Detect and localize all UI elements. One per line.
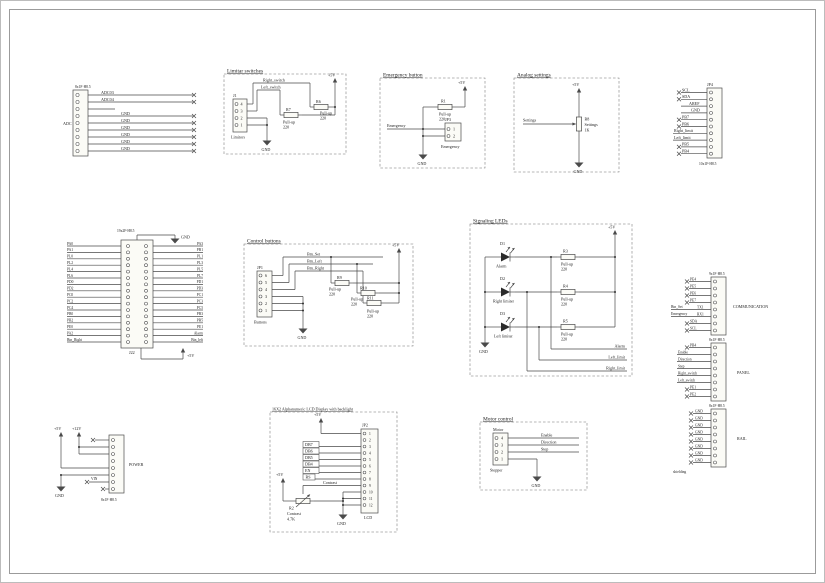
gnd-symbol <box>481 339 490 348</box>
resistor-r6 <box>310 104 332 109</box>
block-title: Analog settings <box>517 73 551 79</box>
connector-panel-body <box>711 343 726 401</box>
net-label-alarm: Alarm <box>615 344 626 349</box>
svg-text:GND: GND <box>695 437 703 441</box>
power-net-label: +5V <box>328 73 335 78</box>
net-label: GND <box>121 111 130 116</box>
wires-left <box>67 246 121 342</box>
svg-text:PD0: PD0 <box>67 280 74 284</box>
connector-name: Emergency <box>441 144 461 149</box>
svg-text:SCL: SCL <box>690 326 697 330</box>
connector-part-label: 8x1F-H8.5 <box>75 85 91 89</box>
group-label-communication: COMMUNICATION <box>733 304 768 309</box>
led-ref: D1 <box>500 241 505 246</box>
block-motor-control: Motor control Motor Stepper 4321 Enable … <box>479 415 589 493</box>
gnd-label: GND <box>181 235 190 240</box>
block-title: 16X2 Alphanumeric LCD Display with backl… <box>272 407 354 412</box>
svg-text:10: 10 <box>369 491 373 495</box>
net-label-vin: VIN <box>91 477 98 481</box>
gnd-symbol <box>57 483 66 492</box>
svg-text:AREF: AREF <box>689 101 700 106</box>
resistor-ref: R10 <box>360 286 367 291</box>
gnd-label: GND <box>532 483 541 488</box>
power-symbol <box>181 348 185 359</box>
connector-group-label: POWER <box>129 462 144 467</box>
connector-ref: JP4 <box>707 82 713 87</box>
net-label-enable: Enable <box>541 433 553 438</box>
led-d1 <box>497 247 515 262</box>
power-net-label: +5V <box>187 353 194 358</box>
svg-text:6: 6 <box>369 465 371 469</box>
power-symbol <box>463 86 467 97</box>
svg-text:GND: GND <box>695 430 703 434</box>
connector-comm-body <box>711 277 726 335</box>
wires-top <box>137 235 175 240</box>
svg-text:Step: Step <box>678 364 685 368</box>
rail-net-labels: GNDGNDGNDGNDGNDGNDGNDGND <box>695 409 703 462</box>
block-lcd: 16X2 Alphanumeric LCD Display with backl… <box>269 405 399 535</box>
connector-ref: JP2 <box>362 423 368 428</box>
power-net-label: +5V <box>392 243 399 248</box>
svg-text:Btn_Right: Btn_Right <box>67 338 82 342</box>
lcd-data-net-flags: DB7 DB6 DB5 DB4 EN RS <box>303 442 319 481</box>
svg-text:PC2: PC2 <box>67 299 73 303</box>
svg-text:2: 2 <box>369 439 371 443</box>
gnd-symbol <box>263 137 272 146</box>
svg-text:GND: GND <box>695 416 703 420</box>
net-label-en: EN <box>305 468 311 473</box>
resistor-r9 <box>331 280 353 285</box>
resistor-r11 <box>363 300 385 305</box>
resistor-ref: R6 <box>316 99 321 104</box>
net-label-direction: Direction <box>541 440 556 445</box>
svg-text:3: 3 <box>265 294 267 299</box>
block-signaling-leds: Signaling LEDs +5V D1 Alarm D2 Right lim… <box>469 217 634 379</box>
net-label-right-switch: Right_switch <box>263 78 285 83</box>
pot-value: 1K <box>585 128 590 133</box>
block-power-header: +5V +12V VIN POWER 8x1F-H8.5 GND <box>45 423 150 507</box>
resistor-value: 220 <box>283 125 289 130</box>
connector-part-label: 9x1F-H8.5 <box>709 272 725 276</box>
svg-text:5: 5 <box>369 458 371 462</box>
svg-text:PL1: PL1 <box>197 255 203 259</box>
svg-text:PE4: PE4 <box>690 277 696 281</box>
net-label: GND <box>121 139 130 144</box>
net-label-btn-right: Btn_Right <box>307 266 325 271</box>
net-label-db7: DB7 <box>305 442 313 447</box>
svg-text:9: 9 <box>369 484 371 488</box>
svg-text:Right_limit: Right_limit <box>674 128 694 133</box>
svg-text:Direction: Direction <box>678 357 692 361</box>
adc-net-labels: ADC03 ADC04 GND GND GND GND GND GND <box>101 90 130 151</box>
wires <box>60 438 109 491</box>
resistor-value: 220 <box>320 116 326 121</box>
net-label-settings: Settings <box>523 118 537 123</box>
connector-part-label: 8x1F-H8.5 <box>101 498 117 502</box>
block-jp4-header: JP4 10x1F-H8.5 SCL SDA AREF GND PB7 PB6 … <box>669 79 789 169</box>
resistor-ref: R9 <box>337 275 342 280</box>
svg-text:PE0: PE0 <box>67 325 73 329</box>
block-main-header: 19x2F-H8.5 GND PA0PA1PL0PL2PL4PL6PD0PD2P… <box>57 225 209 367</box>
block-title: Emergency button <box>383 73 423 79</box>
svg-text:1: 1 <box>265 308 267 313</box>
resistor-ref: R3 <box>563 249 568 254</box>
svg-text:PA1: PA1 <box>67 248 73 252</box>
net-label-left-switch: Left_switch <box>261 85 281 90</box>
svg-text:PB6: PB6 <box>682 121 689 126</box>
svg-text:GND: GND <box>695 423 703 427</box>
connector-name: Limitors <box>231 135 246 140</box>
svg-text:PL5: PL5 <box>197 267 203 271</box>
connector-rail-body <box>711 409 726 467</box>
block-limit-switches: Limitar switches +5V Right_switch Left_s… <box>223 67 348 157</box>
resistor-value: 220 <box>561 337 567 342</box>
note-shielding: shielding <box>673 470 686 474</box>
net-label: GND <box>121 125 130 130</box>
svg-text:PB4: PB4 <box>682 149 689 154</box>
net-label-db6: DB6 <box>305 449 313 454</box>
pot-ref: R8 <box>585 117 590 122</box>
svg-text:GND: GND <box>695 451 703 455</box>
led-name: Alarm <box>496 264 507 269</box>
gnd-label: GND <box>418 161 427 166</box>
gnd-symbol <box>575 159 584 168</box>
svg-text:2: 2 <box>241 116 243 121</box>
net-label-db4: DB4 <box>305 462 313 467</box>
svg-text:RX1: RX1 <box>697 312 704 316</box>
main-left-net-labels: PA0PA1PL0PL2PL4PL6PD0PD2PC0PC2PC4PB0PB2P… <box>67 242 82 342</box>
block-control-buttons: Control buttons +5V Btn_Set Btn_Left Btn… <box>243 237 415 349</box>
svg-text:2: 2 <box>453 134 455 139</box>
svg-text:1: 1 <box>241 123 243 128</box>
svg-text:1: 1 <box>453 127 455 132</box>
connector-part-label: 10x1F-H8.5 <box>699 162 717 166</box>
net-label-rs: RS <box>306 475 312 480</box>
power-net-label: +12V <box>72 426 81 431</box>
power-symbol <box>333 78 337 89</box>
led-name: Left limiter <box>494 334 513 339</box>
resistor-r5 <box>557 324 579 329</box>
power-symbol-12v <box>77 432 81 443</box>
net-label: GND <box>121 146 130 151</box>
block-border <box>514 78 619 172</box>
svg-text:4: 4 <box>241 102 243 107</box>
block-analog-settings: Analog settings +5V Settings R8 Settings… <box>513 71 621 175</box>
gnd-symbol <box>339 511 348 520</box>
svg-text:SCL: SCL <box>682 87 690 92</box>
gnd-label: GND <box>262 147 271 152</box>
svg-text:PE6: PE6 <box>690 291 696 295</box>
pot-value: 4.7K <box>287 517 295 522</box>
gnd-symbol <box>299 325 308 334</box>
svg-text:PA2: PA2 <box>67 331 73 335</box>
resistor-ref: R5 <box>563 319 568 324</box>
net-label-step: Step <box>541 447 548 452</box>
svg-text:PL3: PL3 <box>197 261 203 265</box>
svg-text:GND: GND <box>695 444 703 448</box>
svg-text:3: 3 <box>369 445 371 449</box>
wires <box>283 429 361 511</box>
resistor-ref: R7 <box>286 107 291 112</box>
resistor-r1 <box>434 104 456 109</box>
connector-part-label: 8x1F-H8.5 <box>709 338 725 342</box>
svg-text:PE1: PE1 <box>690 385 696 389</box>
net-label: ADC03 <box>101 90 114 95</box>
connector-adc-body <box>73 90 88 156</box>
svg-text:1: 1 <box>369 432 371 436</box>
svg-text:PA3: PA3 <box>197 242 203 246</box>
net-label-btn-left: Btn_Left <box>307 259 323 264</box>
svg-text:PC3: PC3 <box>197 299 203 303</box>
led-name: Right limiter <box>493 299 515 304</box>
svg-text:PC5: PC5 <box>197 306 203 310</box>
svg-text:PB2: PB2 <box>67 319 73 323</box>
net-label-btn-set: Btn_Set <box>307 252 321 257</box>
gnd-symbol <box>171 235 180 244</box>
resistor-value: 220 <box>351 302 357 307</box>
connector-ref: JP1 <box>257 265 263 270</box>
pot-ref: R2 <box>289 506 294 511</box>
svg-text:Right_switch: Right_switch <box>678 371 697 375</box>
block-title: Signaling LEDs <box>473 219 508 225</box>
connector-ref: J22 <box>129 350 135 355</box>
block-title: Motor control <box>483 417 514 423</box>
svg-text:PC1: PC1 <box>197 293 203 297</box>
svg-text:7: 7 <box>369 471 371 475</box>
power-net-label: +5V <box>608 225 615 230</box>
ext-net-btn-set: Btn_Set <box>671 305 683 309</box>
connector-power-body <box>109 435 124 493</box>
svg-text:PB5: PB5 <box>197 319 203 323</box>
svg-text:12: 12 <box>369 504 373 508</box>
power-net-label: +5V <box>276 472 283 477</box>
svg-text:GND: GND <box>695 458 703 462</box>
svg-text:4: 4 <box>265 287 267 292</box>
power-symbol <box>577 88 581 99</box>
resistor-value: 220 <box>561 302 567 307</box>
resistor-r3 <box>557 254 579 259</box>
svg-text:PB0: PB0 <box>67 312 73 316</box>
led-d3 <box>497 317 515 332</box>
wires-bottom <box>141 348 183 359</box>
led-ref: D2 <box>500 276 505 281</box>
gnd-label: GND <box>337 521 346 526</box>
net-label-left-limit: Left_limit <box>608 355 625 360</box>
svg-text:PD1: PD1 <box>197 280 204 284</box>
svg-text:PL7: PL7 <box>197 274 203 278</box>
block-emergency-button: Emergency button +5V R1 Pull-up 220 Emer… <box>379 71 487 171</box>
connector-ref: JP3 <box>445 117 451 122</box>
svg-text:PE5: PE5 <box>690 284 696 288</box>
resistor-r4 <box>557 289 579 294</box>
resistor-value: 220 <box>561 267 567 272</box>
connector-group-label: ADC <box>63 121 72 126</box>
potentiometer-r8 <box>576 113 581 135</box>
svg-text:PB3: PB3 <box>197 312 203 316</box>
svg-text:3: 3 <box>501 443 503 448</box>
resistor-value: 220 <box>367 314 373 319</box>
group-label-panel: PANEL <box>737 370 750 375</box>
comm-net-labels: PE4PE5PE6PE7TX1RX1SDASCL <box>690 277 704 330</box>
power-net-label: +5V <box>54 426 61 431</box>
net-label-db5: DB5 <box>305 455 313 460</box>
power-symbol-5v <box>59 432 63 443</box>
power-symbol <box>613 230 617 241</box>
svg-text:PL6: PL6 <box>67 274 73 278</box>
gnd-symbol <box>533 473 542 482</box>
gnd-label: GND <box>479 349 488 354</box>
svg-text:8: 8 <box>369 478 371 482</box>
power-symbol <box>397 248 401 259</box>
ext-net-emergency: Emergency <box>671 312 688 316</box>
svg-text:SDA: SDA <box>690 319 698 323</box>
power-symbol <box>319 418 323 429</box>
svg-text:4: 4 <box>369 452 371 456</box>
svg-text:GND: GND <box>691 108 700 113</box>
svg-text:PB5: PB5 <box>682 142 689 147</box>
led-d2 <box>497 282 515 297</box>
svg-text:SDA: SDA <box>682 94 690 99</box>
svg-text:PL2: PL2 <box>67 261 73 265</box>
svg-text:1: 1 <box>501 457 503 462</box>
wires <box>523 99 579 159</box>
svg-text:Alarm: Alarm <box>194 331 203 335</box>
svg-text:6: 6 <box>265 273 267 278</box>
svg-text:2: 2 <box>501 450 503 455</box>
svg-text:PE1: PE1 <box>197 325 203 329</box>
schematic-sheet: 8x1F-H8.5 ADC ADC03 ADC04 GND GND GND GN… <box>0 0 825 583</box>
connector-jp4-body <box>707 88 722 158</box>
svg-text:PE7: PE7 <box>690 298 696 302</box>
svg-text:5: 5 <box>265 280 267 285</box>
led-ref: D3 <box>500 311 505 316</box>
svg-text:PC4: PC4 <box>67 306 73 310</box>
resistor-r7 <box>280 112 302 117</box>
svg-text:Left_limit: Left_limit <box>674 135 691 140</box>
connector-name: LCD <box>364 515 372 520</box>
connector-ref: J1 <box>233 93 237 98</box>
connector-adc-pins <box>76 93 79 152</box>
svg-text:Enable: Enable <box>678 350 688 354</box>
svg-text:PB7: PB7 <box>682 115 689 120</box>
svg-text:3: 3 <box>241 109 243 114</box>
svg-text:PL0: PL0 <box>67 255 73 259</box>
svg-text:Left_switch: Left_switch <box>678 378 695 382</box>
block-title: Limitar switches <box>227 69 263 75</box>
svg-text:TX1: TX1 <box>697 305 704 309</box>
resistor-ref: R11 <box>367 296 374 301</box>
net-label: GND <box>121 132 130 137</box>
resistor-ref: R4 <box>563 284 568 289</box>
gnd-symbol <box>419 151 428 160</box>
jp4-no-connects <box>677 91 681 156</box>
net-label-contrast: Contrast <box>323 480 338 485</box>
net-label-right-limit: Right_limit <box>606 366 626 371</box>
power-symbol <box>281 478 285 489</box>
power-net-label: +5V <box>458 80 465 85</box>
resistor-ref: R1 <box>441 99 446 104</box>
power-net-label: +5V <box>572 82 579 87</box>
main-right-net-labels: PA3PB1PL1PL3PL5PL7PD1PD3PC1PC3PC5PB3PB5P… <box>191 242 203 342</box>
svg-text:PB1: PB1 <box>197 248 203 252</box>
net-label-emergency: Emergency <box>387 123 407 128</box>
connector-main-body <box>121 240 153 348</box>
svg-text:4: 4 <box>501 436 503 441</box>
svg-text:PD2: PD2 <box>67 287 74 291</box>
gnd-label: GND <box>55 493 64 498</box>
connector-part-label: 19x2F-H8.5 <box>117 229 135 233</box>
block-title: Control buttons <box>247 239 281 245</box>
svg-text:2: 2 <box>265 301 267 306</box>
svg-text:PC0: PC0 <box>67 293 73 297</box>
net-label: GND <box>121 118 130 123</box>
svg-text:PB4: PB4 <box>690 343 696 347</box>
svg-text:PD3: PD3 <box>197 287 204 291</box>
svg-text:Btn_left: Btn_left <box>191 338 203 342</box>
connector-part-label: 8x1F-H8.5 <box>709 404 725 408</box>
group-label-rail: RAIL <box>737 436 747 441</box>
svg-text:PL4: PL4 <box>67 267 73 271</box>
pot-label: Settings <box>585 122 599 127</box>
power-net-label: +5V <box>314 412 321 417</box>
resistor-value: 220 <box>329 292 335 297</box>
svg-text:PA0: PA0 <box>67 242 73 246</box>
gnd-label: GND <box>574 169 583 174</box>
block-adc-header: 8x1F-H8.5 ADC ADC03 ADC04 GND GND GND GN… <box>63 81 208 161</box>
svg-text:PE2: PE2 <box>690 392 696 396</box>
wires <box>484 241 627 371</box>
svg-text:GND: GND <box>695 409 703 413</box>
gnd-label: GND <box>298 335 307 340</box>
svg-text:11: 11 <box>369 497 373 501</box>
wires-right <box>153 246 203 342</box>
pot-label: Contrast <box>287 511 302 516</box>
adc-wires <box>88 95 193 151</box>
connector-name: Buttons <box>254 320 267 325</box>
connector-ref: Motor <box>493 427 504 432</box>
net-label: ADC04 <box>101 97 114 102</box>
block-io-stack: 9x1F-H8.5 PE4PE5PE6PE7TX1RX1SDASCL Btn_S… <box>671 269 821 477</box>
connector-name: Stepper <box>490 468 503 473</box>
